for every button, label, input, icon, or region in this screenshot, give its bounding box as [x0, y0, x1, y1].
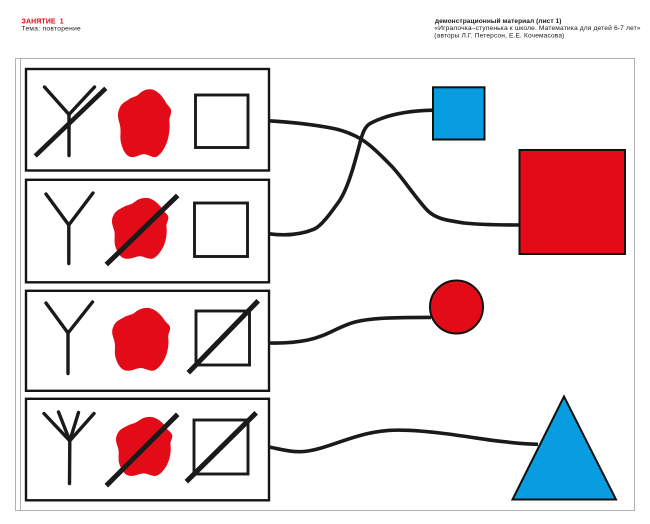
svg-text:(авторы Л.Г. Петерсон, Е.Е. Ко: (авторы Л.Г. Петерсон, Е.Е. Кочемасова)	[434, 32, 564, 39]
svg-text:Тема: повторение: Тема: повторение	[22, 26, 82, 33]
svg-text:«Игралочка–ступенька к школе.: «Игралочка–ступенька к школе. Математика…	[434, 24, 640, 32]
svg-text:ЗАНЯТИЕ 1: ЗАНЯТИЕ 1	[22, 18, 64, 25]
svg-text:демонстрационный материал (лис: демонстрационный материал (лист 1)	[435, 17, 562, 25]
